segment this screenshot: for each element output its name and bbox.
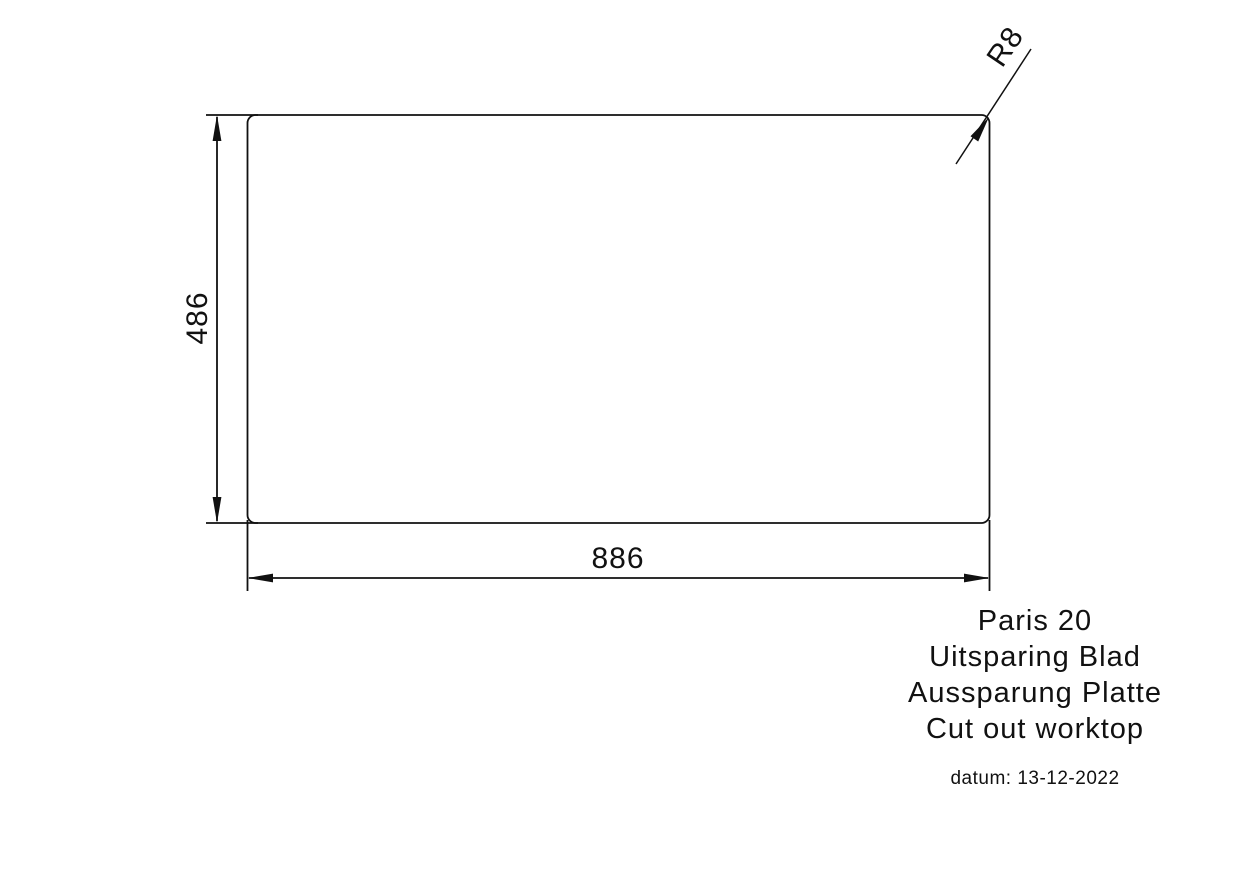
- arrow-up-icon: [213, 115, 222, 141]
- title-line-product: Paris 20: [908, 603, 1162, 639]
- arrow-down-icon: [213, 497, 222, 523]
- cutout-drawing: [0, 0, 1249, 883]
- height-dimension-label: 486: [181, 291, 215, 344]
- arrow-right-icon: [964, 574, 990, 583]
- technical-drawing-page: 486 886 R8 Paris 20 Uitsparing Blad Auss…: [0, 0, 1249, 883]
- cutout-rectangle: [248, 115, 990, 523]
- arrow-left-icon: [248, 574, 274, 583]
- title-block: Paris 20 Uitsparing Blad Aussparung Plat…: [908, 603, 1162, 747]
- title-line-english: Cut out worktop: [908, 711, 1162, 747]
- radius-leader-line: [956, 49, 1031, 164]
- title-line-dutch: Uitsparing Blad: [908, 639, 1162, 675]
- width-dimension-label: 886: [591, 542, 644, 576]
- date-label: datum: 13-12-2022: [950, 768, 1119, 790]
- title-line-german: Aussparung Platte: [908, 675, 1162, 711]
- radius-arrow-icon: [971, 117, 990, 142]
